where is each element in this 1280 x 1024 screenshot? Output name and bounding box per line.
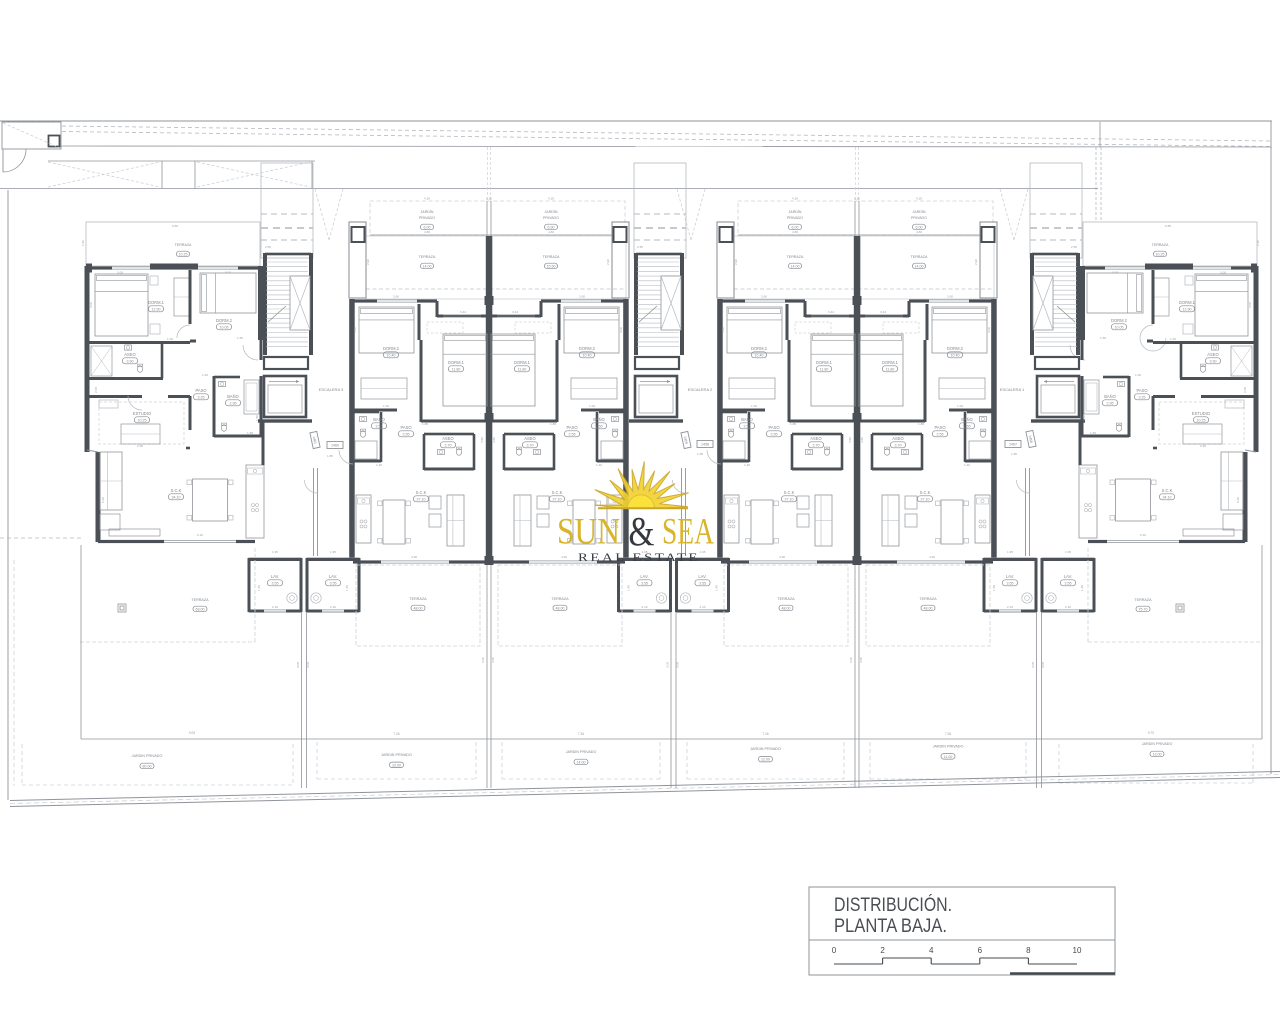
svg-text:1.00: 1.00 (751, 404, 757, 408)
svg-text:LAV.: LAV. (271, 574, 279, 579)
svg-text:1.50: 1.50 (1082, 415, 1086, 421)
svg-text:REAL ESTATE: REAL ESTATE (578, 552, 700, 564)
svg-text:69.00: 69.00 (196, 608, 205, 612)
svg-text:1.65: 1.65 (1100, 336, 1106, 340)
svg-text:PASO: PASO (934, 425, 945, 430)
svg-text:1.40: 1.40 (744, 463, 750, 467)
svg-text:TERRAZA: TERRAZA (191, 598, 209, 602)
svg-text:PRIVADO: PRIVADO (419, 216, 435, 220)
svg-text:2.55: 2.55 (637, 245, 643, 249)
svg-text:2.55: 2.55 (1071, 245, 1077, 249)
svg-text:1.26: 1.26 (486, 197, 492, 201)
svg-text:2: 2 (880, 946, 885, 955)
svg-text:3.90: 3.90 (1210, 359, 1217, 363)
svg-text:LAV.: LAV. (1006, 574, 1014, 579)
svg-text:1.65: 1.65 (247, 431, 253, 435)
svg-text:11.80: 11.80 (452, 367, 461, 371)
svg-text:4.00: 4.00 (89, 302, 93, 308)
svg-text:4.80: 4.80 (916, 230, 922, 234)
svg-text:DORM.2: DORM.2 (383, 346, 400, 351)
svg-text:BAÑO: BAÑO (961, 417, 973, 422)
svg-text:4.50: 4.50 (492, 437, 496, 443)
svg-text:1.40: 1.40 (596, 463, 602, 467)
svg-text:10.00: 10.00 (392, 764, 401, 768)
svg-text:DORM.2: DORM.2 (1111, 318, 1128, 323)
svg-text:48.00: 48.00 (782, 607, 791, 611)
svg-text:PASO: PASO (1136, 388, 1147, 393)
svg-text:S.C.K: S.C.K (171, 488, 182, 493)
svg-text:3.25: 3.25 (1139, 395, 1146, 399)
svg-text:2.20: 2.20 (81, 240, 85, 246)
svg-text:JARDÍN: JARDÍN (789, 210, 802, 214)
svg-text:3.55: 3.55 (376, 424, 383, 428)
svg-text:1.50: 1.50 (255, 415, 259, 421)
svg-text:9.70: 9.70 (1148, 731, 1154, 735)
svg-text:4.90: 4.90 (929, 555, 935, 559)
svg-text:4.06: 4.06 (619, 327, 623, 333)
svg-text:3.05: 3.05 (676, 662, 680, 668)
svg-text:10.25: 10.25 (138, 418, 147, 422)
svg-text:PRIVADO: PRIVADO (911, 216, 927, 220)
svg-text:3.55: 3.55 (1007, 581, 1014, 585)
svg-text:3.70: 3.70 (527, 443, 534, 447)
svg-text:DORM.1: DORM.1 (882, 360, 899, 365)
svg-text:TERRAZA: TERRAZA (543, 255, 560, 259)
svg-text:2.90: 2.90 (974, 259, 978, 265)
svg-text:2.60: 2.60 (947, 295, 953, 299)
svg-text:7.36: 7.36 (578, 732, 584, 736)
svg-text:14.00: 14.00 (577, 761, 586, 765)
svg-text:6.85: 6.85 (172, 224, 178, 228)
svg-text:27.10: 27.10 (417, 497, 426, 501)
svg-text:DORM.1: DORM.1 (1179, 300, 1196, 305)
svg-text:1.88: 1.88 (422, 422, 428, 426)
svg-text:3.55: 3.55 (744, 424, 751, 428)
svg-text:DISTRIBUCIÓN.: DISTRIBUCIÓN. (834, 893, 952, 916)
svg-text:10.25: 10.25 (1156, 253, 1165, 257)
svg-text:TERRAZA: TERRAZA (409, 597, 427, 601)
svg-text:1.45: 1.45 (1080, 585, 1084, 591)
svg-text:10: 10 (1073, 946, 1082, 955)
svg-text:10.40: 10.40 (755, 353, 764, 357)
svg-text:27.10: 27.10 (785, 497, 794, 501)
svg-text:3.00: 3.00 (225, 271, 231, 275)
svg-text:JARDIN PRIVADO: JARDIN PRIVADO (933, 744, 964, 748)
svg-text:1.85: 1.85 (697, 452, 703, 456)
svg-text:1.88: 1.88 (550, 422, 556, 426)
svg-text:3.20: 3.20 (481, 657, 485, 663)
svg-text:PASO: PASO (195, 388, 206, 393)
svg-text:ASEO: ASEO (810, 436, 821, 441)
svg-text:1.95: 1.95 (272, 550, 278, 554)
svg-text:LAV.: LAV. (640, 574, 648, 579)
svg-text:10.25: 10.25 (179, 253, 188, 257)
svg-text:JARDÍN: JARDÍN (545, 210, 558, 214)
svg-text:14.00: 14.00 (423, 265, 432, 269)
svg-text:2.10: 2.10 (1065, 605, 1071, 609)
svg-text:2.95: 2.95 (1107, 401, 1114, 405)
svg-text:ASEO: ASEO (1207, 352, 1218, 357)
svg-text:ASEO: ASEO (442, 436, 453, 441)
svg-text:ESCALERA 2: ESCALERA 2 (688, 387, 713, 392)
svg-text:4.35: 4.35 (792, 197, 798, 201)
svg-text:1.95: 1.95 (330, 550, 336, 554)
svg-text:4.90: 4.90 (779, 555, 785, 559)
svg-text:S.C.K: S.C.K (1162, 488, 1173, 493)
svg-text:5.15: 5.15 (101, 497, 105, 503)
svg-text:1.88: 1.88 (918, 422, 924, 426)
svg-text:13.00: 13.00 (1153, 753, 1162, 757)
svg-text:12.00: 12.00 (761, 758, 770, 762)
svg-text:JARDIN PRIVADO: JARDIN PRIVADO (1142, 742, 1173, 746)
svg-text:LAV.: LAV. (329, 574, 337, 579)
svg-text:ASEO: ASEO (892, 436, 903, 441)
svg-text:1.65: 1.65 (237, 336, 243, 340)
svg-text:6.90: 6.90 (548, 226, 555, 230)
svg-text:2.60: 2.60 (393, 295, 399, 299)
svg-text:S.C.K: S.C.K (416, 490, 427, 495)
svg-text:1.00: 1.00 (202, 373, 208, 377)
svg-text:6.10: 6.10 (197, 533, 203, 537)
svg-text:75.70: 75.70 (1139, 608, 1148, 612)
svg-text:10.05: 10.05 (220, 325, 229, 329)
svg-text:34.10: 34.10 (172, 495, 181, 499)
svg-text:ASEO: ASEO (124, 352, 135, 357)
svg-text:12.90: 12.90 (1183, 307, 1192, 311)
svg-text:3.44: 3.44 (460, 310, 466, 314)
svg-text:DORM.2: DORM.2 (751, 346, 768, 351)
svg-text:ASEO: ASEO (524, 436, 535, 441)
svg-text:2.60: 2.60 (761, 295, 767, 299)
svg-text:2.60: 2.60 (579, 295, 585, 299)
svg-text:DORM.1: DORM.1 (148, 300, 165, 305)
svg-text:3.05: 3.05 (306, 662, 310, 668)
svg-text:0: 0 (832, 946, 837, 955)
svg-text:2.05: 2.05 (1243, 387, 1247, 393)
svg-text:2.20: 2.20 (1256, 240, 1260, 246)
svg-text:10.05: 10.05 (1115, 325, 1124, 329)
svg-text:1.85: 1.85 (327, 454, 333, 458)
svg-text:15.50: 15.50 (547, 265, 556, 269)
svg-text:1.00: 1.00 (1170, 337, 1176, 341)
svg-text:3.05: 3.05 (1031, 662, 1035, 668)
svg-text:2.10: 2.10 (1007, 605, 1013, 609)
svg-text:5.15: 5.15 (1236, 497, 1240, 503)
svg-text:DORM.1: DORM.1 (514, 360, 531, 365)
svg-text:3.05: 3.05 (666, 662, 670, 668)
svg-text:1.45: 1.45 (627, 585, 631, 591)
svg-text:80.00: 80.00 (143, 765, 152, 769)
svg-text:PASO: PASO (768, 425, 779, 430)
svg-text:4.35: 4.35 (424, 197, 430, 201)
svg-text:DORM.2: DORM.2 (947, 346, 964, 351)
svg-text:2.55: 2.55 (771, 432, 778, 436)
svg-text:3.70: 3.70 (445, 443, 452, 447)
svg-text:3.05: 3.05 (296, 662, 300, 668)
svg-text:1.88: 1.88 (790, 422, 796, 426)
svg-text:1.45: 1.45 (345, 585, 349, 591)
svg-text:BAÑO: BAÑO (741, 417, 753, 422)
svg-text:27.10: 27.10 (921, 497, 930, 501)
svg-text:6.85: 6.85 (1165, 224, 1171, 228)
svg-text:3.55: 3.55 (641, 581, 648, 585)
svg-text:10.25: 10.25 (1197, 418, 1206, 422)
svg-text:4.50: 4.50 (480, 437, 484, 443)
svg-text:1.26: 1.26 (854, 197, 860, 201)
svg-text:DORM.1: DORM.1 (448, 360, 465, 365)
svg-text:DORM.2: DORM.2 (579, 346, 596, 351)
svg-text:2.10: 2.10 (641, 605, 647, 609)
svg-text:6.00: 6.00 (792, 226, 799, 230)
svg-text:3.55: 3.55 (964, 424, 971, 428)
svg-text:2.55: 2.55 (569, 432, 576, 436)
svg-text:TERRAZA: TERRAZA (919, 597, 937, 601)
svg-text:3.05: 3.05 (1041, 662, 1045, 668)
svg-text:3.55: 3.55 (596, 424, 603, 428)
svg-text:4.06: 4.06 (353, 327, 357, 333)
svg-text:3.55: 3.55 (330, 581, 337, 585)
svg-text:JARDIN PRIVADO: JARDIN PRIVADO (132, 754, 163, 758)
svg-text:14.00: 14.00 (791, 265, 800, 269)
svg-text:1.40: 1.40 (964, 463, 970, 467)
svg-text:JARDÍN: JARDÍN (421, 210, 434, 214)
svg-text:1.65: 1.65 (1090, 431, 1096, 435)
svg-text:S.C.K: S.C.K (920, 490, 931, 495)
svg-text:BAÑO: BAÑO (593, 417, 605, 422)
svg-text:2.90: 2.90 (366, 259, 370, 265)
svg-text:14.00: 14.00 (915, 265, 924, 269)
svg-text:2.10: 2.10 (272, 605, 278, 609)
svg-text:3.20: 3.20 (491, 657, 495, 663)
svg-text:TERRAZA: TERRAZA (1152, 243, 1169, 247)
svg-text:3.44: 3.44 (828, 310, 834, 314)
svg-text:TERRAZA: TERRAZA (419, 255, 436, 259)
svg-text:TERRAZA: TERRAZA (777, 597, 795, 601)
svg-text:2.90: 2.90 (734, 259, 738, 265)
svg-text:7.36: 7.36 (762, 732, 768, 736)
svg-text:1.40: 1.40 (376, 463, 382, 467)
svg-text:ESTUDIO: ESTUDIO (1192, 411, 1210, 416)
svg-text:PRIVADO: PRIVADO (543, 216, 559, 220)
svg-text:4.80: 4.80 (424, 230, 430, 234)
svg-text:2.95: 2.95 (1200, 444, 1206, 448)
svg-text:1.85: 1.85 (1011, 452, 1017, 456)
svg-text:1.95: 1.95 (1065, 550, 1071, 554)
svg-text:3.44: 3.44 (512, 310, 518, 314)
svg-text:27.10: 27.10 (553, 497, 562, 501)
svg-text:ESTUDIO: ESTUDIO (133, 411, 151, 416)
svg-text:4.50: 4.50 (848, 437, 852, 443)
svg-text:2.90: 2.90 (606, 259, 610, 265)
svg-text:48.00: 48.00 (924, 607, 933, 611)
svg-text:3.44: 3.44 (880, 310, 886, 314)
svg-text:3.90: 3.90 (127, 359, 134, 363)
svg-text:10.40: 10.40 (583, 353, 592, 357)
svg-text:3.70: 3.70 (895, 443, 902, 447)
svg-text:1.00: 1.00 (167, 337, 173, 341)
svg-text:8: 8 (1026, 946, 1031, 955)
svg-text:BAÑO: BAÑO (373, 417, 385, 422)
svg-text:11.80: 11.80 (886, 367, 895, 371)
svg-text:10.40: 10.40 (951, 353, 960, 357)
svg-text:BAÑO: BAÑO (227, 394, 239, 399)
svg-text:3.55: 3.55 (699, 581, 706, 585)
svg-text:3.70: 3.70 (813, 443, 820, 447)
svg-text:34.10: 34.10 (1163, 495, 1172, 499)
svg-text:TERRAZA: TERRAZA (175, 243, 192, 247)
svg-text:TERRAZA: TERRAZA (551, 597, 569, 601)
svg-text:11.80: 11.80 (518, 367, 527, 371)
svg-text:JARDIN PRIVADO: JARDIN PRIVADO (566, 750, 597, 754)
svg-text:JARDÍN: JARDÍN (913, 210, 926, 214)
svg-text:PASO: PASO (566, 425, 577, 430)
svg-text:10.40: 10.40 (387, 353, 396, 357)
svg-text:TERRAZA: TERRAZA (787, 255, 804, 259)
svg-text:12.90: 12.90 (152, 307, 161, 311)
svg-text:1457: 1457 (1009, 443, 1017, 447)
svg-text:48.00: 48.00 (414, 607, 423, 611)
svg-text:JARDIN PRIVADO: JARDIN PRIVADO (381, 753, 412, 757)
svg-text:1.45: 1.45 (257, 585, 261, 591)
svg-text:4.06: 4.06 (721, 327, 725, 333)
svg-text:4.50: 4.50 (860, 437, 864, 443)
svg-text:11.80: 11.80 (820, 367, 829, 371)
svg-text:BAÑO: BAÑO (1104, 394, 1116, 399)
svg-text:PLANTA BAJA.: PLANTA BAJA. (834, 915, 947, 937)
svg-text:2.95: 2.95 (137, 444, 143, 448)
svg-text:3.25: 3.25 (198, 395, 205, 399)
svg-text:1.00: 1.00 (957, 404, 963, 408)
svg-text:&: & (629, 508, 655, 554)
svg-text:S.C.K: S.C.K (784, 490, 795, 495)
svg-text:S.C.K: S.C.K (552, 490, 563, 495)
svg-text:1.00: 1.00 (1135, 373, 1141, 377)
svg-text:LAV.: LAV. (1064, 574, 1072, 579)
svg-text:2.55: 2.55 (937, 432, 944, 436)
svg-text:4: 4 (929, 946, 934, 955)
svg-text:2.05: 2.05 (94, 387, 98, 393)
svg-text:6: 6 (978, 946, 983, 955)
svg-text:3.00: 3.00 (117, 271, 123, 275)
svg-text:1458: 1458 (701, 443, 709, 447)
svg-text:3.00: 3.00 (1220, 271, 1226, 275)
svg-text:LAV.: LAV. (698, 574, 706, 579)
svg-text:4.00: 4.00 (1248, 302, 1252, 308)
svg-text:4.35: 4.35 (916, 197, 922, 201)
svg-text:PRIVADO: PRIVADO (787, 216, 803, 220)
svg-text:4.35: 4.35 (548, 197, 554, 201)
svg-text:11.00: 11.00 (944, 755, 953, 759)
svg-text:3.55: 3.55 (1065, 581, 1072, 585)
svg-text:6.00: 6.00 (916, 226, 923, 230)
svg-text:4.90: 4.90 (411, 555, 417, 559)
svg-text:4.80: 4.80 (792, 230, 798, 234)
svg-text:SUN: SUN (557, 512, 620, 553)
svg-text:1.45: 1.45 (715, 585, 719, 591)
svg-text:1460: 1460 (331, 444, 339, 448)
svg-text:6.10: 6.10 (1140, 533, 1146, 537)
svg-text:2.10: 2.10 (699, 605, 705, 609)
svg-text:7.36: 7.36 (945, 732, 951, 736)
svg-text:6.00: 6.00 (424, 226, 431, 230)
svg-text:SEA: SEA (662, 512, 714, 553)
svg-text:9.05: 9.05 (189, 731, 195, 735)
svg-text:4.90: 4.90 (561, 555, 567, 559)
svg-text:1.45: 1.45 (992, 585, 996, 591)
svg-text:48.00: 48.00 (556, 607, 565, 611)
svg-text:ESCALERA 1: ESCALERA 1 (1000, 387, 1025, 392)
svg-text:TERRAZA: TERRAZA (1134, 598, 1152, 602)
svg-text:4.06: 4.06 (987, 327, 991, 333)
svg-text:TERRAZA: TERRAZA (911, 255, 928, 259)
svg-text:3.00: 3.00 (1112, 271, 1118, 275)
svg-text:DORM.2: DORM.2 (216, 318, 233, 323)
svg-text:2.95: 2.95 (230, 401, 237, 405)
svg-text:1.00: 1.00 (383, 404, 389, 408)
svg-text:2.10: 2.10 (330, 605, 336, 609)
svg-text:PASO: PASO (400, 425, 411, 430)
svg-text:ESCALERA 3: ESCALERA 3 (319, 387, 344, 392)
svg-text:4.80: 4.80 (548, 230, 554, 234)
svg-text:2.55: 2.55 (265, 245, 271, 249)
svg-text:1.00: 1.00 (589, 404, 595, 408)
svg-text:3.20: 3.20 (859, 657, 863, 663)
svg-text:3.20: 3.20 (849, 657, 853, 663)
svg-text:DORM.1: DORM.1 (816, 360, 833, 365)
svg-text:2.55: 2.55 (403, 432, 410, 436)
svg-text:7.36: 7.36 (393, 732, 399, 736)
svg-text:JARDIN PRIVADO: JARDIN PRIVADO (750, 747, 781, 751)
svg-text:3.55: 3.55 (272, 581, 279, 585)
svg-text:1.95: 1.95 (1007, 550, 1013, 554)
